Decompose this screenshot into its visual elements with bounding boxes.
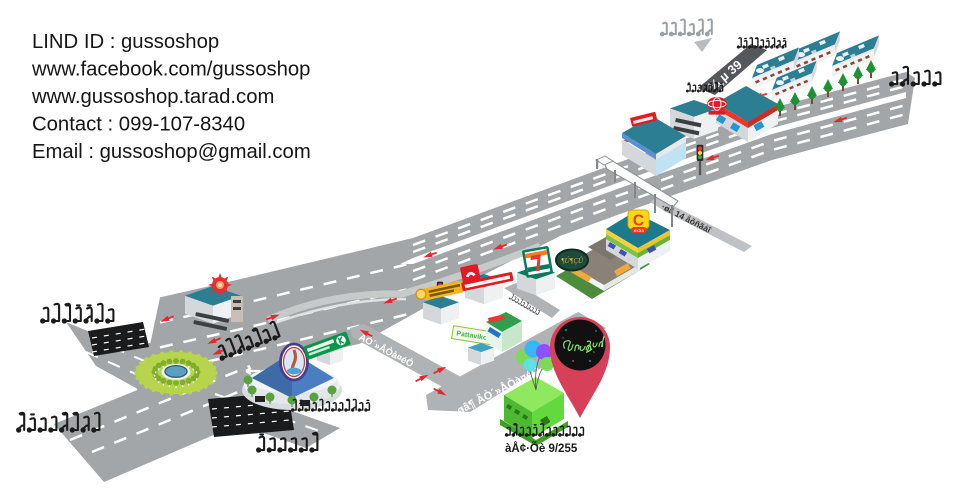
svg-text:Contact : 099-107-8340: Contact : 099-107-8340 xyxy=(32,114,245,136)
svg-text:extra: extra xyxy=(634,228,645,233)
svg-text:www.gussoshop.tarad.com: www.gussoshop.tarad.com xyxy=(31,86,274,108)
svg-text:www.facebook.com/gussoshop: www.facebook.com/gussoshop xyxy=(31,59,310,81)
svg-text:àÅ¢·Õè 9/255: àÅ¢·Õè 9/255 xyxy=(505,442,578,455)
svg-text:LIND ID : gussoshop: LIND ID : gussoshop xyxy=(32,31,219,53)
svg-text:Email : gussoshop@gmail.com: Email : gussoshop@gmail.com xyxy=(32,141,311,163)
svg-text:C: C xyxy=(633,213,644,230)
svg-text:¶Ú¶ÇÛ: ¶Ú¶ÇÛ xyxy=(561,257,584,265)
